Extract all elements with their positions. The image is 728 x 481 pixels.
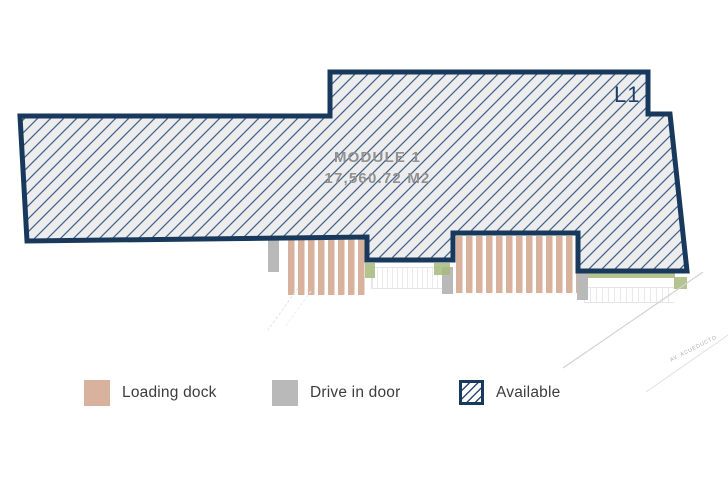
legend-label: Drive in door	[310, 384, 400, 402]
legend-item-drive-in-door: Drive in door	[272, 380, 400, 406]
road-edge-line-2	[646, 335, 728, 392]
site-plan-canvas: AV. ACUEDUCTO MODULE 1 17,560.72 M2 L1 L…	[0, 0, 728, 481]
driveway-line-2	[285, 291, 311, 327]
module-label-block: MODULE 1 17,560.72 M2	[275, 147, 480, 189]
loading-dock-swatch	[84, 380, 110, 406]
legend-item-available: Available	[459, 380, 560, 405]
driveway-line-1	[268, 288, 298, 330]
legend-label: Loading dock	[122, 384, 217, 402]
module-area: 17,560.72 M2	[275, 168, 480, 189]
legend-label: Available	[496, 384, 560, 402]
available-swatch	[459, 380, 484, 405]
floor-plan-svg: AV. ACUEDUCTO	[0, 0, 728, 481]
module-name: MODULE 1	[275, 147, 480, 168]
drive-in-door-swatch	[272, 380, 298, 406]
level-label: L1	[614, 82, 640, 108]
legend-item-loading-dock: Loading dock	[84, 380, 217, 406]
